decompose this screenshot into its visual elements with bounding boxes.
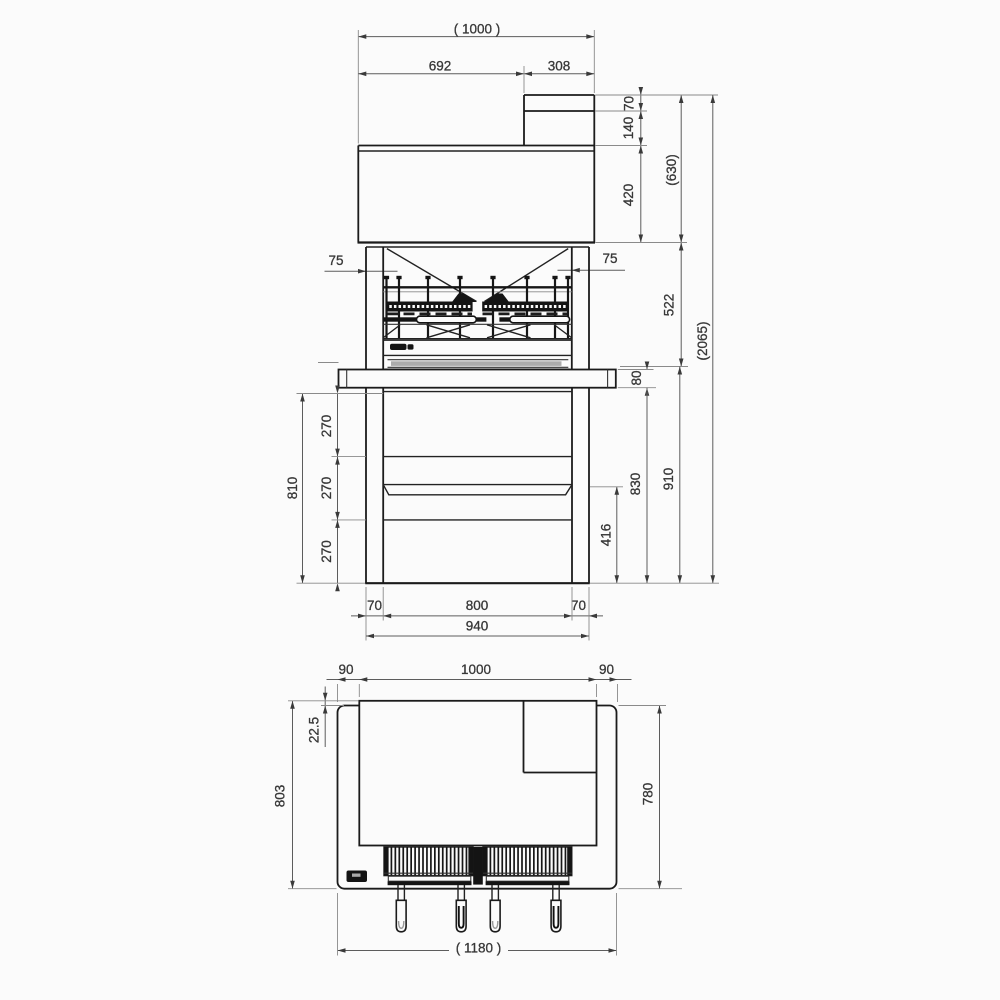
svg-text:70: 70 bbox=[622, 96, 637, 111]
svg-text:940: 940 bbox=[466, 619, 489, 634]
svg-text:75: 75 bbox=[602, 251, 617, 266]
svg-text:90: 90 bbox=[599, 662, 614, 677]
svg-text:140: 140 bbox=[621, 117, 636, 140]
svg-text:75: 75 bbox=[328, 253, 343, 268]
svg-text:(630): (630) bbox=[664, 154, 679, 186]
svg-text:270: 270 bbox=[319, 540, 334, 563]
svg-text:780: 780 bbox=[641, 783, 656, 806]
svg-text:1000: 1000 bbox=[461, 662, 491, 677]
svg-text:270: 270 bbox=[319, 477, 334, 500]
svg-text:416: 416 bbox=[599, 524, 614, 547]
svg-text:522: 522 bbox=[662, 294, 677, 317]
svg-text:70: 70 bbox=[367, 598, 382, 613]
svg-text:(2065): (2065) bbox=[695, 321, 710, 360]
svg-text:308: 308 bbox=[548, 59, 571, 74]
svg-text:803: 803 bbox=[273, 785, 288, 808]
svg-text:692: 692 bbox=[429, 59, 452, 74]
svg-text:( 1180 ): ( 1180 ) bbox=[456, 941, 502, 956]
svg-text:( 1000 ): ( 1000 ) bbox=[454, 22, 501, 37]
svg-text:80: 80 bbox=[629, 370, 644, 385]
svg-text:910: 910 bbox=[661, 468, 676, 491]
svg-text:800: 800 bbox=[466, 598, 489, 613]
svg-text:90: 90 bbox=[338, 662, 353, 677]
svg-text:830: 830 bbox=[628, 473, 643, 496]
svg-text:810: 810 bbox=[285, 477, 300, 500]
svg-text:270: 270 bbox=[319, 415, 334, 438]
svg-text:420: 420 bbox=[621, 184, 636, 207]
svg-text:70: 70 bbox=[571, 598, 586, 613]
svg-text:22.5: 22.5 bbox=[307, 717, 322, 743]
